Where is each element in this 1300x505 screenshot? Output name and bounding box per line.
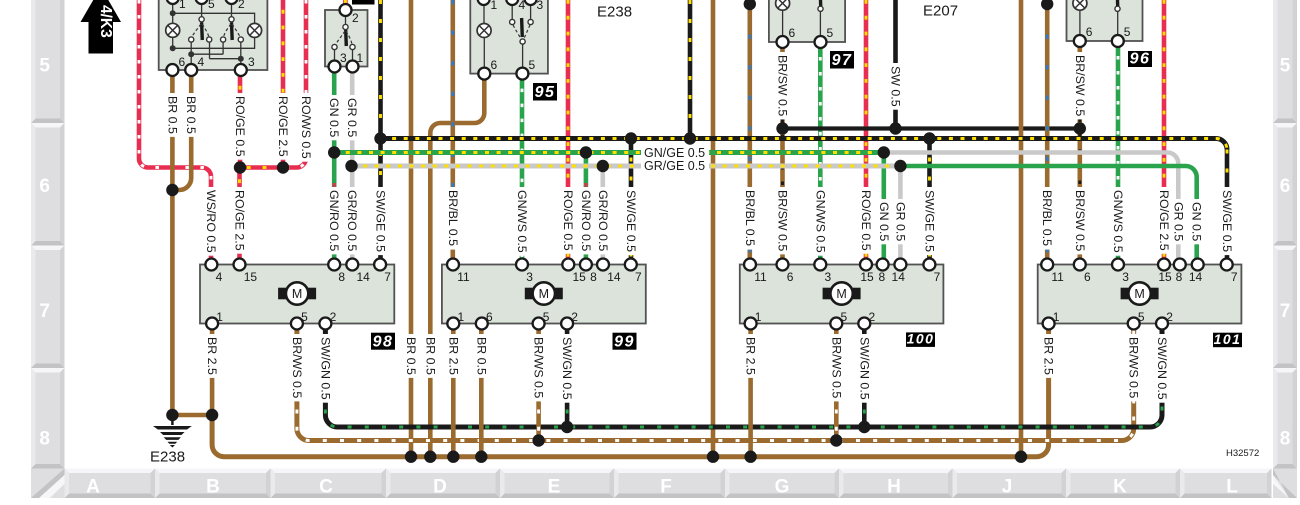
svg-text:6: 6: [789, 26, 796, 40]
svg-text:7: 7: [1231, 270, 1238, 284]
svg-text:BR 0.5: BR 0.5: [474, 337, 488, 375]
svg-text:BR 2.5: BR 2.5: [446, 337, 460, 375]
svg-text:3: 3: [248, 55, 255, 69]
svg-text:6: 6: [1280, 176, 1291, 197]
svg-text:8: 8: [590, 270, 597, 284]
svg-text:SW/GN 0.5: SW/GN 0.5: [560, 337, 574, 400]
svg-text:5: 5: [1280, 56, 1291, 77]
svg-text:K: K: [1113, 477, 1127, 498]
svg-text:6: 6: [486, 310, 493, 324]
svg-text:SW/GE 0.5: SW/GE 0.5: [624, 190, 638, 252]
svg-text:BR 2.5: BR 2.5: [205, 337, 219, 375]
svg-text:SW/GN 0.5: SW/GN 0.5: [857, 337, 871, 400]
svg-text:GN/WS 0.5: GN/WS 0.5: [515, 190, 529, 253]
svg-text:B: B: [206, 477, 220, 498]
svg-text:SW/GN 0.5: SW/GN 0.5: [1155, 337, 1169, 400]
svg-text:BR 0.5: BR 0.5: [184, 96, 198, 134]
svg-text:GR 0.5: GR 0.5: [345, 98, 359, 137]
svg-text:2: 2: [1166, 310, 1173, 324]
svg-text:3: 3: [537, 0, 544, 12]
svg-text:BR/BL 0.5: BR/BL 0.5: [743, 190, 757, 246]
svg-text:RO/GE 0.5: RO/GE 0.5: [233, 96, 247, 157]
svg-text:15: 15: [573, 270, 587, 284]
svg-text:M: M: [1134, 287, 1144, 301]
svg-text:GN/WS 0.5: GN/WS 0.5: [813, 190, 827, 253]
svg-text:F: F: [660, 477, 672, 498]
svg-text:RO/GE 0.5: RO/GE 0.5: [561, 190, 575, 251]
svg-text:98: 98: [373, 333, 394, 350]
svg-text:7: 7: [934, 270, 941, 284]
svg-text:6: 6: [787, 270, 794, 284]
svg-text:96: 96: [1130, 50, 1151, 67]
svg-text:101: 101: [1214, 331, 1242, 347]
svg-text:C: C: [319, 477, 333, 498]
svg-text:GR 0.5: GR 0.5: [1171, 202, 1185, 241]
svg-text:D: D: [433, 477, 447, 498]
svg-text:11: 11: [1051, 270, 1064, 284]
svg-text:6: 6: [491, 58, 498, 72]
svg-text:8: 8: [878, 270, 885, 284]
svg-text:5: 5: [827, 26, 834, 40]
svg-text:A: A: [86, 477, 100, 498]
svg-text:BR/WS 0.5: BR/WS 0.5: [532, 337, 546, 398]
svg-text:GN/RO 0.5: GN/RO 0.5: [579, 190, 593, 251]
svg-text:BR/SW 0.5: BR/SW 0.5: [776, 55, 790, 116]
svg-text:GN 0.5: GN 0.5: [877, 202, 891, 241]
svg-text:M: M: [836, 287, 846, 301]
svg-text:4/K3: 4/K3: [97, 5, 114, 38]
svg-text:BR/BL 0.5: BR/BL 0.5: [446, 190, 460, 246]
svg-text:2: 2: [571, 310, 578, 324]
svg-text:E: E: [548, 477, 561, 498]
svg-text:5: 5: [301, 310, 308, 324]
svg-text:5: 5: [543, 310, 550, 324]
svg-text:1: 1: [1053, 310, 1060, 324]
svg-text:7: 7: [635, 270, 642, 284]
svg-text:14: 14: [892, 270, 906, 284]
svg-text:G: G: [775, 477, 790, 498]
svg-text:99: 99: [614, 333, 635, 350]
svg-text:15: 15: [244, 270, 258, 284]
svg-text:BR 2.5: BR 2.5: [744, 337, 758, 375]
svg-text:3: 3: [825, 270, 832, 284]
svg-text:8: 8: [1280, 429, 1291, 450]
svg-text:8: 8: [338, 270, 345, 284]
svg-text:14: 14: [357, 270, 371, 284]
svg-text:E207: E207: [923, 3, 958, 20]
svg-text:BR 0.5: BR 0.5: [165, 96, 179, 134]
svg-text:GR/RO 0.5: GR/RO 0.5: [345, 190, 359, 251]
svg-text:GR 0.5: GR 0.5: [893, 202, 907, 241]
svg-text:2: 2: [330, 310, 337, 324]
svg-text:5: 5: [1124, 25, 1131, 39]
svg-text:4: 4: [519, 0, 526, 12]
svg-text:6: 6: [1084, 270, 1091, 284]
svg-text:BR/BL 0.5: BR/BL 0.5: [1040, 190, 1054, 246]
svg-text:E238: E238: [150, 449, 185, 466]
svg-text:SW 0.5: SW 0.5: [889, 66, 903, 107]
svg-text:11: 11: [457, 270, 470, 284]
svg-text:SW/GE 0.5: SW/GE 0.5: [923, 190, 937, 252]
svg-text:5: 5: [529, 58, 536, 72]
svg-text:2: 2: [238, 0, 245, 11]
svg-text:3: 3: [340, 51, 347, 65]
svg-text:14: 14: [607, 270, 621, 284]
svg-text:J: J: [1002, 477, 1013, 498]
svg-text:BR/WS 0.5: BR/WS 0.5: [829, 337, 843, 398]
svg-text:RO/WS 0.5: RO/WS 0.5: [299, 96, 313, 159]
svg-text:3: 3: [1122, 270, 1129, 284]
svg-text:RO/GE 0.5: RO/GE 0.5: [859, 190, 873, 251]
svg-text:7: 7: [1280, 301, 1291, 322]
svg-text:97: 97: [832, 52, 853, 69]
svg-text:BR/WS 0.5: BR/WS 0.5: [290, 337, 304, 398]
svg-text:8: 8: [1176, 270, 1183, 284]
svg-text:1: 1: [755, 310, 762, 324]
svg-text:WS/RO 0.5: WS/RO 0.5: [204, 190, 218, 253]
svg-text:5: 5: [841, 310, 848, 324]
svg-text:5: 5: [39, 56, 50, 77]
svg-text:6: 6: [179, 55, 186, 69]
svg-text:4: 4: [198, 55, 205, 69]
svg-text:15: 15: [1158, 270, 1172, 284]
svg-text:5: 5: [1138, 310, 1145, 324]
svg-text:E238: E238: [597, 4, 632, 21]
svg-text:BR 0.5: BR 0.5: [404, 337, 418, 375]
svg-text:GN/RO 0.5: GN/RO 0.5: [327, 190, 341, 251]
svg-text:15: 15: [860, 270, 874, 284]
svg-text:M: M: [539, 287, 549, 301]
svg-text:GN/WS 0.5: GN/WS 0.5: [1111, 190, 1125, 253]
svg-text:BR 0.5: BR 0.5: [423, 337, 437, 375]
svg-text:6: 6: [1086, 25, 1093, 39]
svg-text:1: 1: [458, 310, 465, 324]
svg-text:GR/GE 0.5: GR/GE 0.5: [644, 159, 705, 173]
svg-text:4: 4: [216, 270, 223, 284]
svg-text:RO/GE 2.5: RO/GE 2.5: [276, 96, 290, 157]
svg-text:1: 1: [179, 0, 186, 11]
svg-text:GN 0.5: GN 0.5: [1190, 202, 1204, 241]
svg-text:8: 8: [39, 429, 50, 450]
svg-text:BR/SW 0.5: BR/SW 0.5: [1073, 55, 1087, 116]
svg-text:6: 6: [39, 176, 50, 197]
svg-text:H32572: H32572: [1226, 448, 1259, 459]
svg-text:100: 100: [907, 331, 935, 347]
svg-text:7: 7: [384, 270, 391, 284]
svg-text:7: 7: [39, 301, 50, 322]
svg-text:95: 95: [535, 84, 556, 101]
svg-text:GR/RO 0.5: GR/RO 0.5: [596, 190, 610, 251]
svg-text:14: 14: [1189, 270, 1203, 284]
svg-text:11: 11: [754, 270, 767, 284]
svg-text:3: 3: [526, 270, 533, 284]
svg-text:2: 2: [352, 11, 359, 25]
svg-text:M: M: [292, 287, 302, 301]
svg-text:1: 1: [357, 51, 364, 65]
svg-text:RO/GE 2.5: RO/GE 2.5: [1157, 190, 1171, 251]
svg-text:SW/GN 0.5: SW/GN 0.5: [318, 337, 332, 400]
svg-text:RO/GE 2.5: RO/GE 2.5: [233, 190, 247, 251]
svg-text:SW/GE 0.5: SW/GE 0.5: [1220, 190, 1234, 252]
svg-text:2: 2: [869, 310, 876, 324]
svg-text:1: 1: [491, 0, 498, 12]
svg-text:5: 5: [208, 0, 215, 11]
svg-text:BR/WS 0.5: BR/WS 0.5: [1127, 337, 1141, 398]
svg-text:BR 2.5: BR 2.5: [1042, 337, 1056, 375]
svg-text:BR/SW 0.5: BR/SW 0.5: [776, 190, 790, 251]
svg-text:1: 1: [216, 310, 223, 324]
svg-text:BR/SW 0.5: BR/SW 0.5: [1073, 190, 1087, 251]
svg-text:SW/GE 0.5: SW/GE 0.5: [374, 190, 388, 252]
svg-text:H: H: [887, 477, 901, 498]
svg-text:GN 0.5: GN 0.5: [327, 98, 341, 137]
svg-text:L: L: [1226, 477, 1238, 498]
